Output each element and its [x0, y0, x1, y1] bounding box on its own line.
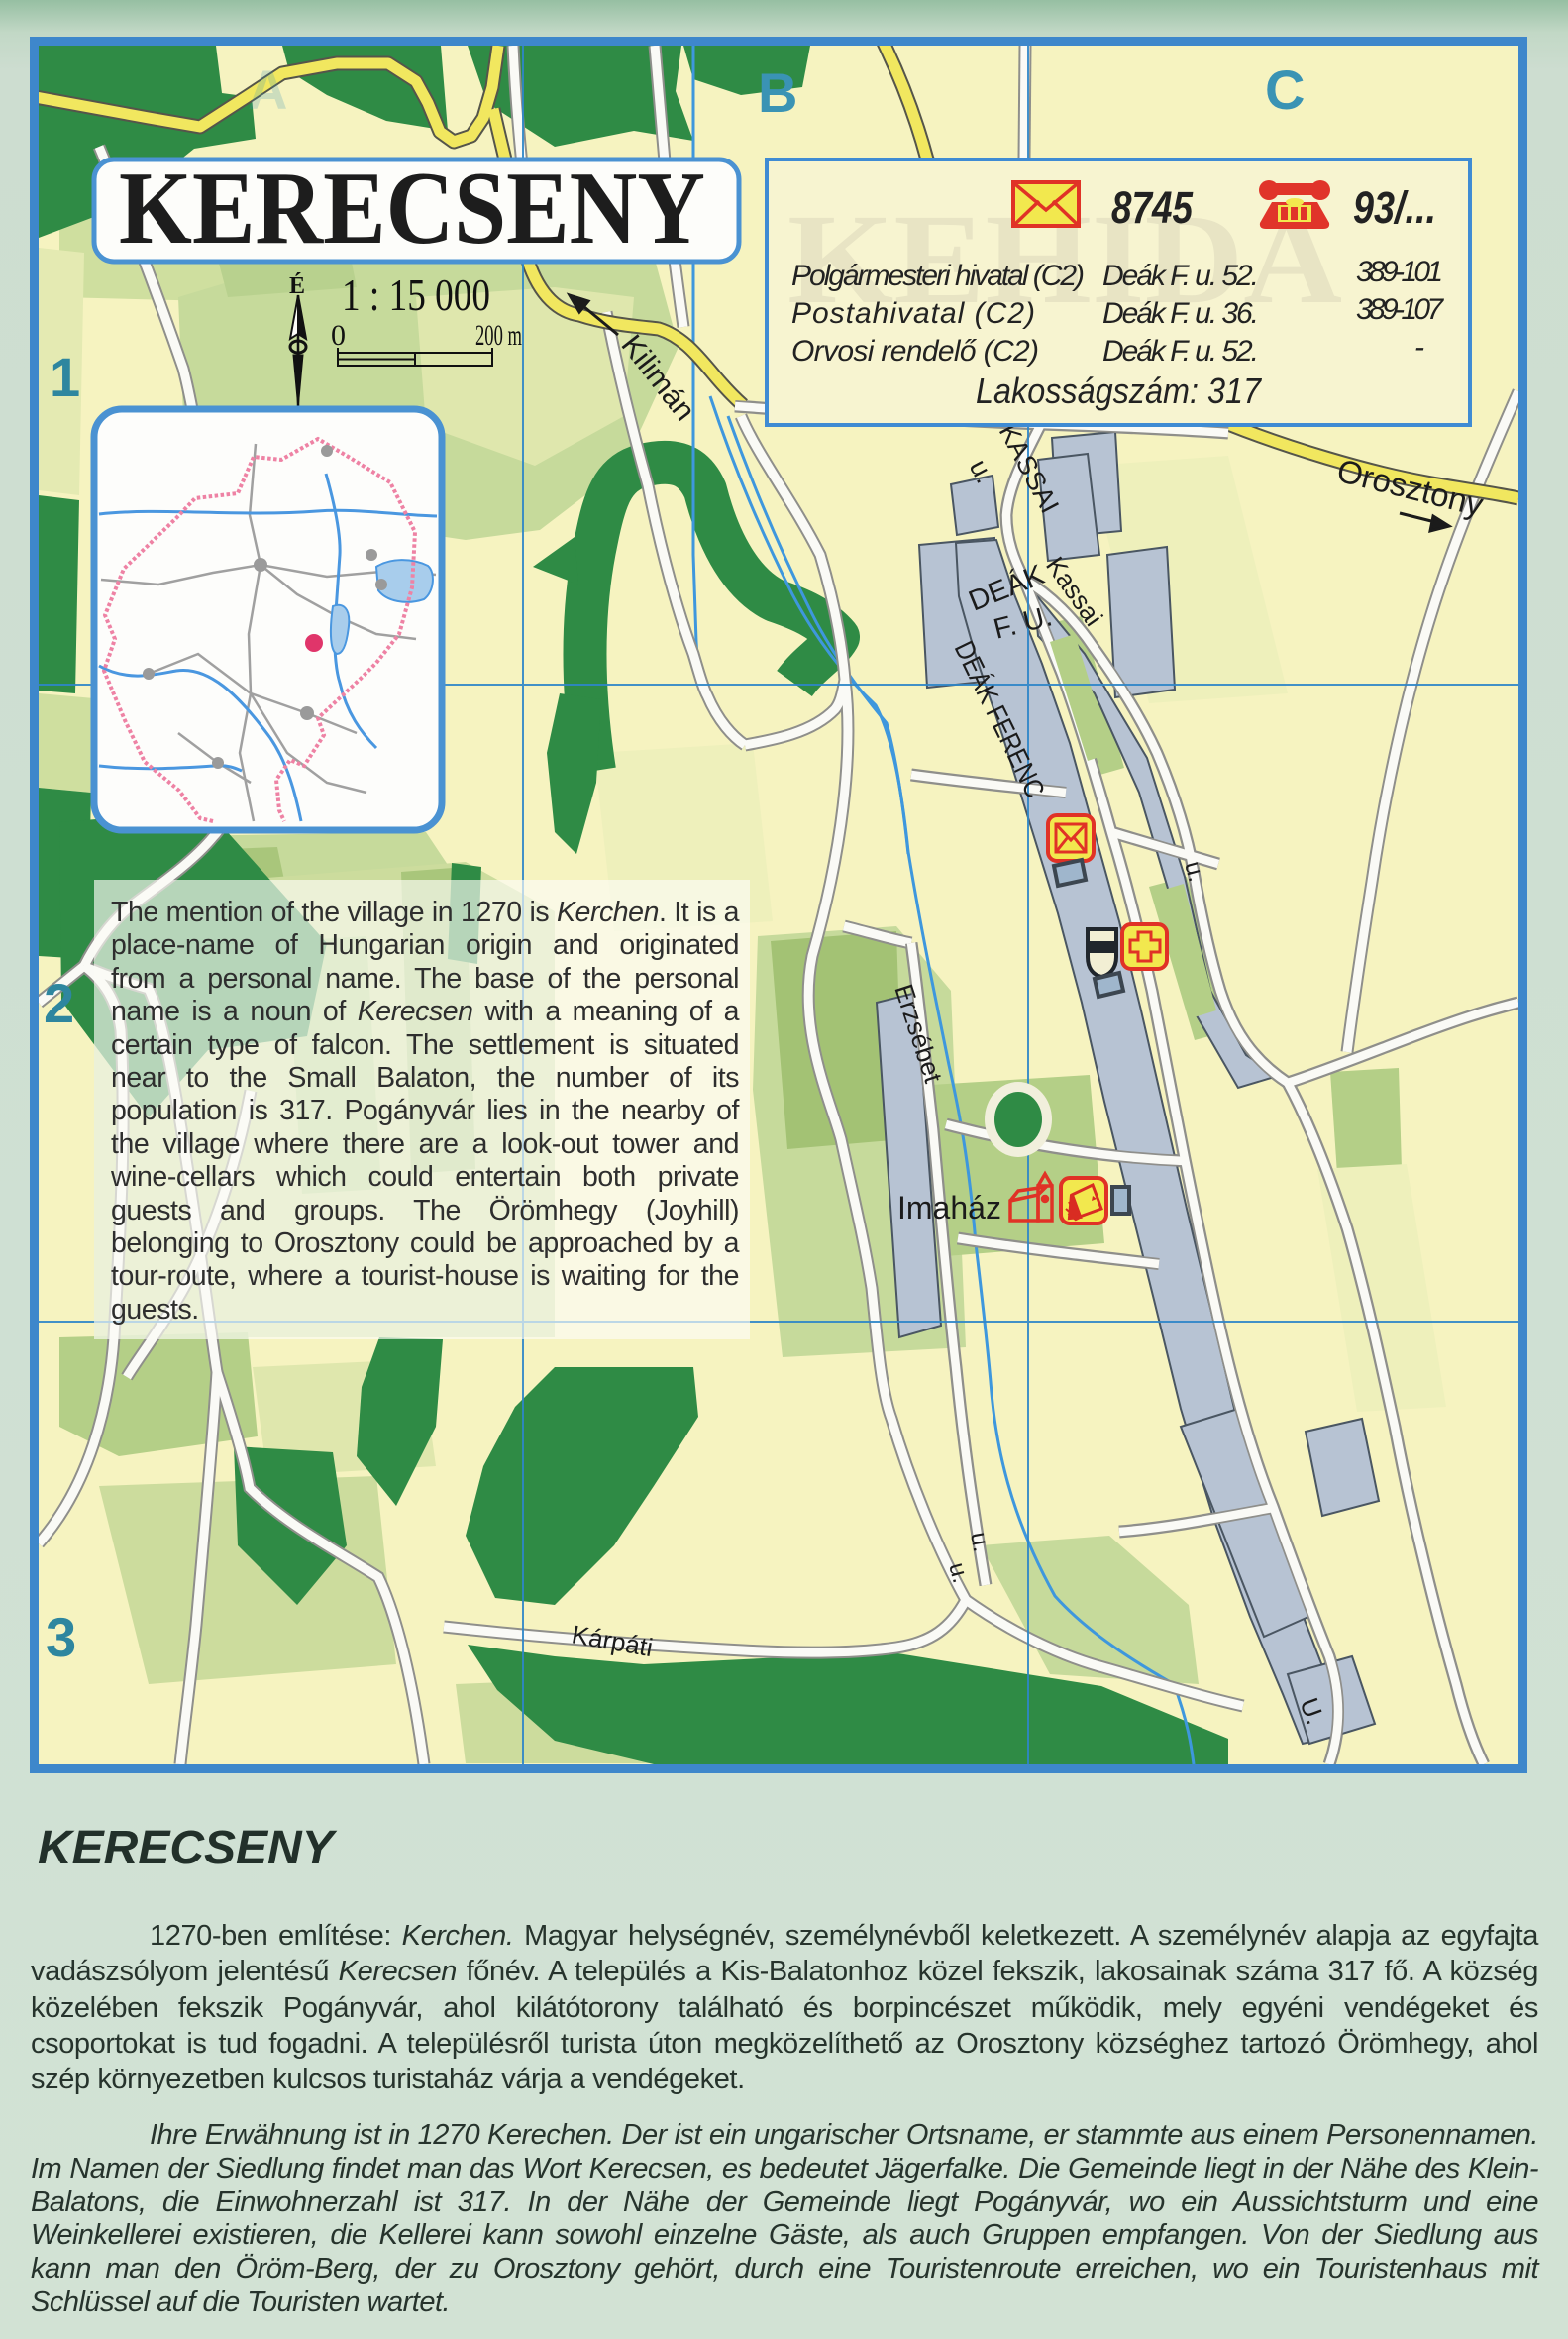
svg-text:2: 2	[44, 972, 74, 1034]
svg-text:200 m: 200 m	[475, 319, 522, 352]
svg-text:KERECSENY: KERECSENY	[119, 150, 705, 266]
svg-text:93/...: 93/...	[1353, 182, 1436, 233]
svg-text:Polgármesteri hivatal (C2): Polgármesteri hivatal (C2)	[791, 260, 1085, 292]
svg-text:Deák F. u. 52.: Deák F. u. 52.	[1102, 335, 1259, 368]
svg-text:Deák F. u. 36.: Deák F. u. 36.	[1102, 297, 1259, 330]
svg-text:Imaház: Imaház	[897, 1190, 1001, 1225]
svg-text:389-107: 389-107	[1356, 293, 1444, 326]
svg-text:0: 0	[331, 319, 346, 352]
svg-text:C: C	[1265, 58, 1305, 121]
svg-text:1: 1	[50, 346, 80, 408]
svg-text:Orvosi rendelő (C2): Orvosi rendelő (C2)	[791, 335, 1039, 368]
svg-text:Lakosságszám: 317: Lakosságszám: 317	[976, 371, 1263, 411]
svg-text:3: 3	[46, 1606, 76, 1668]
svg-text:A: A	[248, 58, 287, 121]
svg-text:389-101: 389-101	[1356, 256, 1443, 288]
svg-text:Postahivatal (C2): Postahivatal (C2)	[791, 297, 1035, 330]
svg-text:-: -	[1414, 331, 1424, 364]
svg-text:Deák F. u. 52.: Deák F. u. 52.	[1102, 260, 1259, 292]
svg-text:8745: 8745	[1111, 182, 1194, 233]
svg-text:B: B	[758, 61, 797, 124]
svg-text:1 : 15 000: 1 : 15 000	[342, 269, 490, 320]
